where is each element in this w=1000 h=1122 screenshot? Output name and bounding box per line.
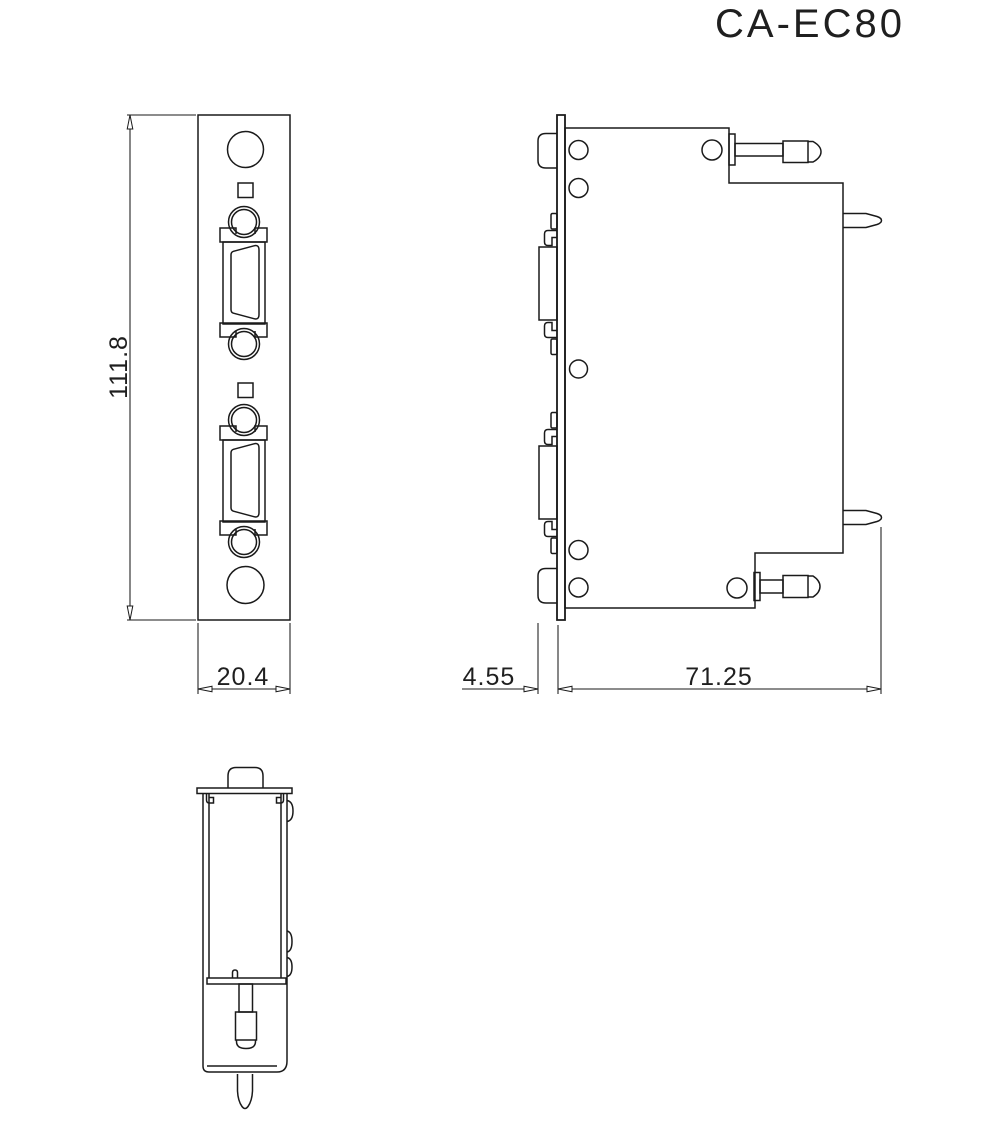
bottom-connector-bump bbox=[228, 768, 263, 789]
front-square-cutout-1 bbox=[238, 183, 253, 198]
front-square-cutout-2 bbox=[238, 383, 253, 398]
side-bottom-guide-pin bbox=[843, 511, 882, 525]
dim-label-protrusion: 4.55 bbox=[463, 663, 516, 691]
side-view bbox=[538, 115, 882, 620]
arrowhead-right bbox=[524, 686, 538, 692]
side-top-guide-pin bbox=[843, 214, 882, 228]
front-view bbox=[198, 115, 290, 620]
side-top-thumbscrew bbox=[729, 134, 821, 165]
front-dsub-connector-1 bbox=[220, 207, 267, 360]
arrowhead-down bbox=[127, 606, 133, 620]
technical-drawing-canvas: CA-EC80 bbox=[0, 0, 1000, 1122]
dimension-connector-protrusion: 4.55 bbox=[462, 623, 558, 694]
bottom-end-bar bbox=[207, 978, 286, 984]
dim-label-depth: 71.25 bbox=[685, 663, 753, 691]
arrowhead-right bbox=[276, 686, 290, 692]
bottom-view bbox=[197, 768, 293, 1109]
side-dsub-profile-1 bbox=[539, 214, 557, 355]
arrowhead-up bbox=[127, 115, 133, 129]
dimension-body-depth: 71.25 bbox=[558, 527, 881, 694]
arrowhead-left bbox=[558, 686, 572, 692]
side-dsub-profile-2 bbox=[539, 413, 557, 554]
dimension-overall-height: 111.8 bbox=[105, 115, 196, 620]
drawing-sheet: CA-EC80 bbox=[0, 0, 1000, 1122]
front-top-knob-hole bbox=[228, 132, 264, 168]
bottom-panel-plate bbox=[197, 788, 292, 794]
side-bottom-knob bbox=[538, 569, 557, 604]
arrowhead-left bbox=[198, 686, 212, 692]
bottom-side-lug-1 bbox=[287, 801, 293, 822]
dim-label-width: 20.4 bbox=[217, 663, 270, 691]
bottom-body-outline bbox=[203, 794, 287, 1073]
dim-label-height: 111.8 bbox=[105, 335, 133, 399]
front-dsub-connector-2 bbox=[220, 405, 267, 558]
side-body-outline bbox=[565, 128, 843, 608]
front-bottom-knob-hole bbox=[227, 567, 264, 604]
bottom-guide-pin bbox=[238, 1074, 253, 1109]
bottom-thumbscrew bbox=[236, 984, 257, 1049]
bottom-corner-clip-left bbox=[207, 794, 214, 804]
side-panel-plate bbox=[557, 115, 565, 620]
part-number-title: CA-EC80 bbox=[715, 2, 905, 46]
side-screw-holes bbox=[569, 140, 747, 598]
bottom-latch-notch bbox=[233, 970, 238, 978]
side-bottom-thumbscrew bbox=[754, 573, 820, 601]
dimension-panel-width: 20.4 bbox=[198, 623, 290, 694]
side-top-knob bbox=[538, 134, 557, 169]
arrowhead-right bbox=[867, 686, 881, 692]
bottom-corner-clip-right bbox=[277, 794, 284, 804]
